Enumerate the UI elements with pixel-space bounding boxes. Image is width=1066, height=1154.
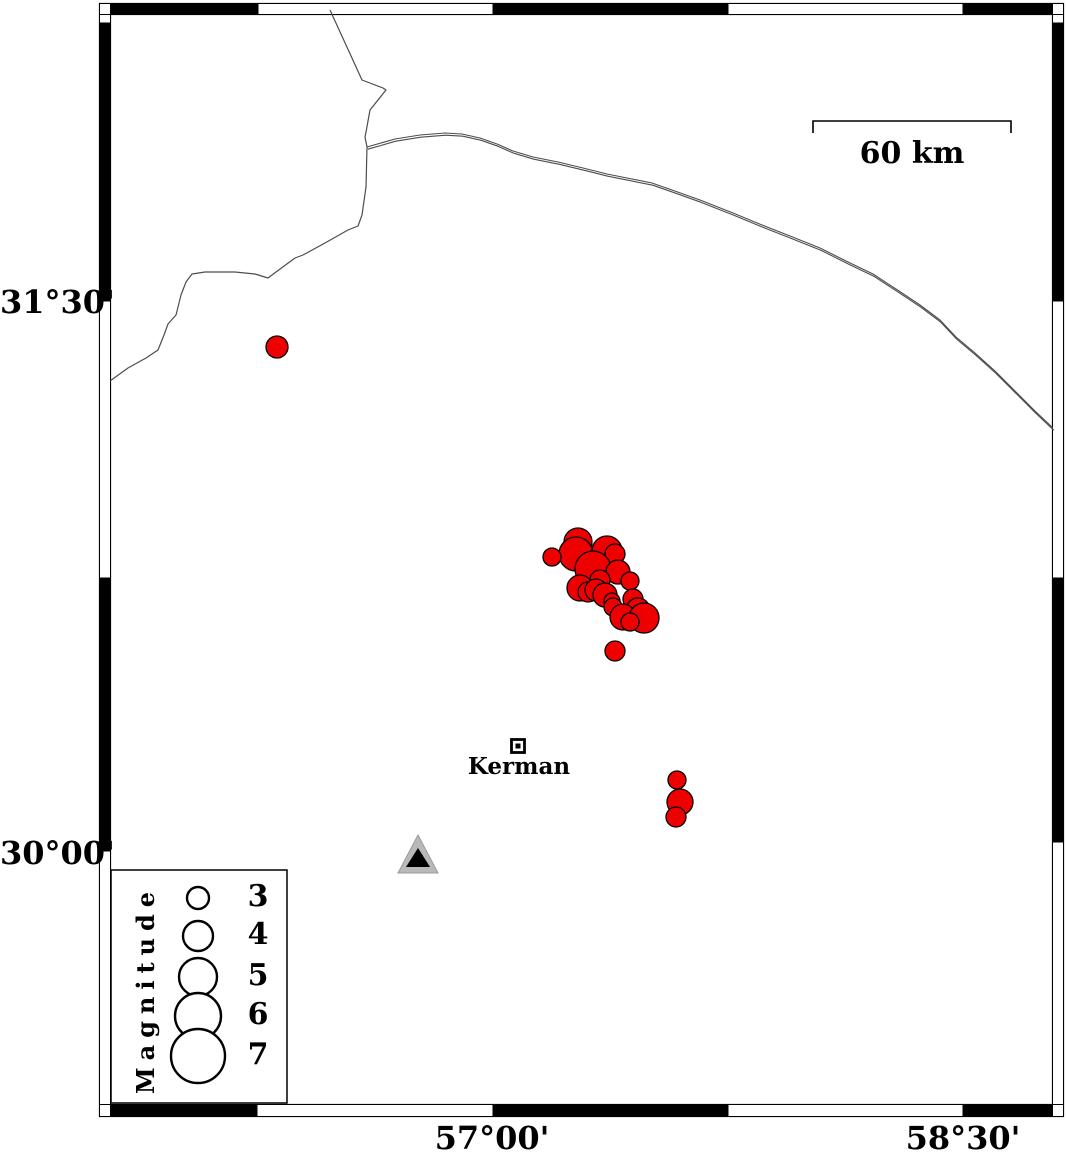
lat-label-30-00: 30°00' [0,834,92,872]
lon-label-58-30: 58°30' [863,1119,1063,1154]
lon-label-57-00: 57°00' [392,1119,592,1154]
frame-band-right [1053,15,1064,1105]
seismicity-map: 31°30' 30°00' 57°00' 58°30' 60 km Kerman… [0,0,1066,1154]
legend-circle-mag-5 [179,958,217,996]
legend-circle-mag-3 [187,887,209,909]
legend-mag-label-6: 6 [238,997,278,1032]
legend-mag-label-5: 5 [238,958,278,993]
frame-band-left [100,15,111,1105]
epicenter-dot [543,548,561,566]
legend-circle-mag-4 [183,921,213,951]
legend-mag-label-4: 4 [238,917,278,952]
legend-title: Magnitude [131,885,160,1094]
city-label: Kerman [439,753,599,780]
scale-bar-label: 60 km [812,136,1012,171]
epicenter-dot [621,572,639,590]
legend-circle-mag-7 [171,1029,225,1083]
epicenter-dot [668,771,686,789]
frame-band-top [111,4,1053,15]
legend-mag-label-7: 7 [238,1037,278,1072]
lat-label-31-30: 31°30' [0,283,92,321]
epicenter-dot [266,336,288,358]
frame-band-bottom [111,1105,1053,1117]
epicenter-dot [621,613,639,631]
legend-mag-label-3: 3 [238,879,278,914]
epicenter-dot [605,641,625,661]
epicenter-dot [666,807,686,827]
city-marker-dot [516,744,521,749]
